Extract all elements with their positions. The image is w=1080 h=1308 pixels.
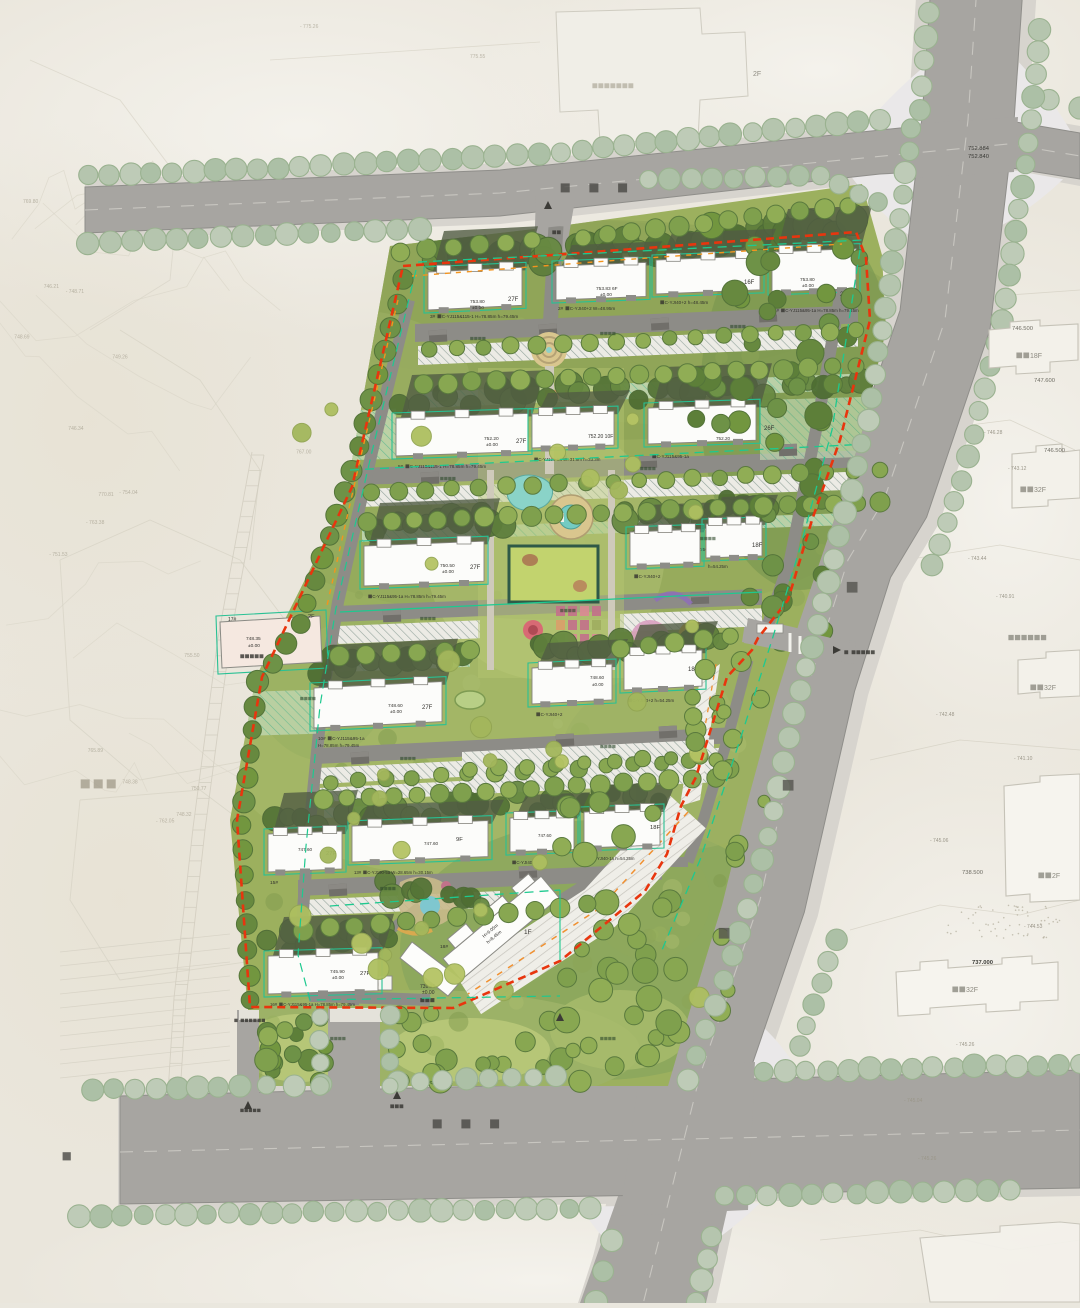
svg-text:737.000: 737.000 bbox=[972, 960, 993, 966]
svg-text:27F: 27F bbox=[516, 439, 527, 445]
svg-text:27F: 27F bbox=[470, 565, 481, 571]
svg-text:h=54.25m: h=54.25m bbox=[708, 564, 728, 569]
svg-text:26F: 26F bbox=[764, 426, 775, 432]
svg-text:- 775.26: - 775.26 bbox=[300, 24, 319, 30]
svg-text:746.34: 746.34 bbox=[68, 426, 84, 432]
svg-text:- 744.53: - 744.53 bbox=[1024, 924, 1043, 930]
svg-text:27F: 27F bbox=[422, 705, 433, 711]
svg-text:C-YJ115&95-1a: C-YJ115&95-1a bbox=[657, 454, 690, 459]
svg-text:5#: 5# bbox=[398, 464, 404, 469]
svg-text:748.38: 748.38 bbox=[122, 780, 138, 786]
svg-text:- 741.10: - 741.10 bbox=[1014, 756, 1033, 762]
svg-text:- 754.04: - 754.04 bbox=[119, 490, 138, 496]
svg-text:15#: 15# bbox=[270, 880, 278, 886]
svg-text:2F: 2F bbox=[1052, 873, 1060, 880]
svg-text:767.00: 767.00 bbox=[296, 450, 312, 456]
svg-text:- 745.04: - 745.04 bbox=[904, 1098, 923, 1104]
svg-text:17#: 17# bbox=[228, 617, 237, 623]
svg-text:±0.00: ±0.00 bbox=[442, 569, 454, 575]
svg-text:- 762.05: - 762.05 bbox=[156, 819, 175, 825]
svg-text:18F: 18F bbox=[1030, 353, 1042, 360]
svg-text:753.80: 753.80 bbox=[800, 277, 815, 283]
svg-text:753.80: 753.80 bbox=[470, 299, 485, 305]
svg-text:752.20: 752.20 bbox=[484, 436, 499, 442]
svg-text:- 740.91: - 740.91 bbox=[996, 594, 1015, 600]
svg-text:748.60: 748.60 bbox=[388, 703, 403, 709]
svg-text:C-YJ115&95-1a: C-YJ115&95-1a bbox=[332, 736, 365, 741]
svg-text:- 748.71: - 748.71 bbox=[66, 289, 85, 295]
svg-text:746.500: 746.500 bbox=[1012, 326, 1033, 332]
svg-text:- 743.44: - 743.44 bbox=[968, 556, 987, 562]
svg-text:- 751.53: - 751.53 bbox=[49, 552, 68, 558]
svg-text:748.35: 748.35 bbox=[246, 636, 261, 642]
svg-text:±0.00: ±0.00 bbox=[802, 283, 814, 289]
svg-text:32F: 32F bbox=[1034, 487, 1046, 494]
svg-text:±0.00: ±0.00 bbox=[390, 709, 402, 715]
svg-text:C-YJ115&115-1 H=78.85m h=79.4: C-YJ115&115-1 H=78.85m h=79.45m bbox=[442, 314, 519, 319]
svg-text:753.83 6F: 753.83 6F bbox=[596, 286, 618, 292]
svg-text:- 745.26: - 745.26 bbox=[918, 1156, 937, 1162]
svg-text:750.50: 750.50 bbox=[440, 563, 455, 569]
svg-text:746.500: 746.500 bbox=[1044, 448, 1065, 454]
svg-text:9F: 9F bbox=[456, 837, 463, 843]
svg-text:747.600: 747.600 bbox=[1034, 378, 1055, 384]
svg-text:13#: 13# bbox=[354, 870, 362, 875]
svg-text:770.81: 770.81 bbox=[98, 492, 114, 498]
svg-text:755.50: 755.50 bbox=[184, 653, 200, 659]
svg-text:±0.00: ±0.00 bbox=[600, 292, 612, 298]
svg-text:C-YJI40+2: C-YJI40+2 bbox=[639, 574, 661, 579]
svg-text:752.840: 752.840 bbox=[968, 154, 989, 160]
svg-text:769.80: 769.80 bbox=[23, 199, 39, 205]
svg-text:745.90: 745.90 bbox=[330, 969, 345, 975]
svg-text:±0.00: ±0.00 bbox=[486, 442, 498, 448]
svg-text:27F: 27F bbox=[508, 297, 519, 303]
svg-text:3#: 3# bbox=[430, 314, 436, 319]
svg-text:- 745.26: - 745.26 bbox=[956, 1042, 975, 1048]
svg-text:C-YJI40: C-YJI40 bbox=[516, 860, 532, 865]
svg-text:C-YJ115&95-1a H=78.85m h=79.45: C-YJ115&95-1a H=78.85m h=79.45m bbox=[785, 308, 859, 313]
svg-text:10#: 10# bbox=[318, 736, 326, 741]
svg-text:747.60: 747.60 bbox=[424, 841, 438, 846]
svg-text:C-YJ190-5a W=28.65m h=30.15m: C-YJ190-5a W=28.65m h=30.15m bbox=[367, 870, 433, 875]
svg-text:- 745.06: - 745.06 bbox=[930, 838, 949, 844]
svg-text:749.26: 749.26 bbox=[112, 354, 128, 360]
svg-text:775.55: 775.55 bbox=[470, 54, 486, 60]
svg-text:C-YJI40+2: C-YJI40+2 bbox=[541, 712, 563, 717]
svg-text:H=78.85m h=79.45m: H=78.85m h=79.45m bbox=[318, 743, 360, 748]
svg-text:±0.00: ±0.00 bbox=[248, 643, 260, 649]
svg-text:750.77: 750.77 bbox=[191, 786, 207, 792]
svg-text:32F: 32F bbox=[966, 987, 978, 994]
svg-text:765.89: 765.89 bbox=[88, 748, 104, 754]
svg-text:C-YJ115&95-1a H=78.85m h=79.4: C-YJ115&95-1a H=78.85m h=79.45m bbox=[372, 594, 446, 599]
svg-text:738.500: 738.500 bbox=[962, 870, 983, 876]
svg-text:- 743.12: - 743.12 bbox=[1008, 466, 1027, 472]
svg-text:18F: 18F bbox=[650, 825, 660, 831]
svg-text:±0.00: ±0.00 bbox=[332, 975, 344, 981]
svg-text:±0.00: ±0.00 bbox=[592, 682, 604, 687]
svg-text:C-YJI40-1a h=54.25m: C-YJI40-1a h=54.25m bbox=[592, 856, 635, 861]
svg-text:748.32: 748.32 bbox=[176, 812, 192, 818]
svg-text:752.20 10F: 752.20 10F bbox=[588, 434, 613, 440]
svg-text:748.60: 748.60 bbox=[590, 675, 604, 680]
svg-text:2F: 2F bbox=[753, 71, 761, 78]
svg-text:18F: 18F bbox=[752, 543, 763, 549]
svg-text:1F: 1F bbox=[524, 929, 532, 936]
svg-text:2#: 2# bbox=[558, 306, 564, 311]
svg-text:752.884: 752.884 bbox=[968, 146, 990, 152]
svg-text:- 742.48: - 742.48 bbox=[936, 712, 955, 718]
svg-text:C-YJI40+2 h=48.45m: C-YJI40+2 h=48.45m bbox=[665, 300, 709, 305]
svg-text:18#: 18# bbox=[440, 944, 448, 950]
svg-text:748.69: 748.69 bbox=[14, 335, 30, 341]
svg-text:746.21: 746.21 bbox=[44, 284, 60, 290]
svg-text:±0.00: ±0.00 bbox=[472, 305, 484, 311]
svg-text:32F: 32F bbox=[1044, 685, 1056, 692]
svg-text:752.20: 752.20 bbox=[716, 436, 730, 441]
svg-text:- 763.38: - 763.38 bbox=[86, 520, 105, 526]
svg-text:- 746.28: - 746.28 bbox=[984, 430, 1003, 436]
svg-text:C-YJI40+2 W=48.95m: C-YJI40+2 W=48.95m bbox=[570, 306, 616, 311]
svg-text:747.60: 747.60 bbox=[538, 833, 552, 838]
svg-text:±0.00: ±0.00 bbox=[422, 990, 435, 996]
